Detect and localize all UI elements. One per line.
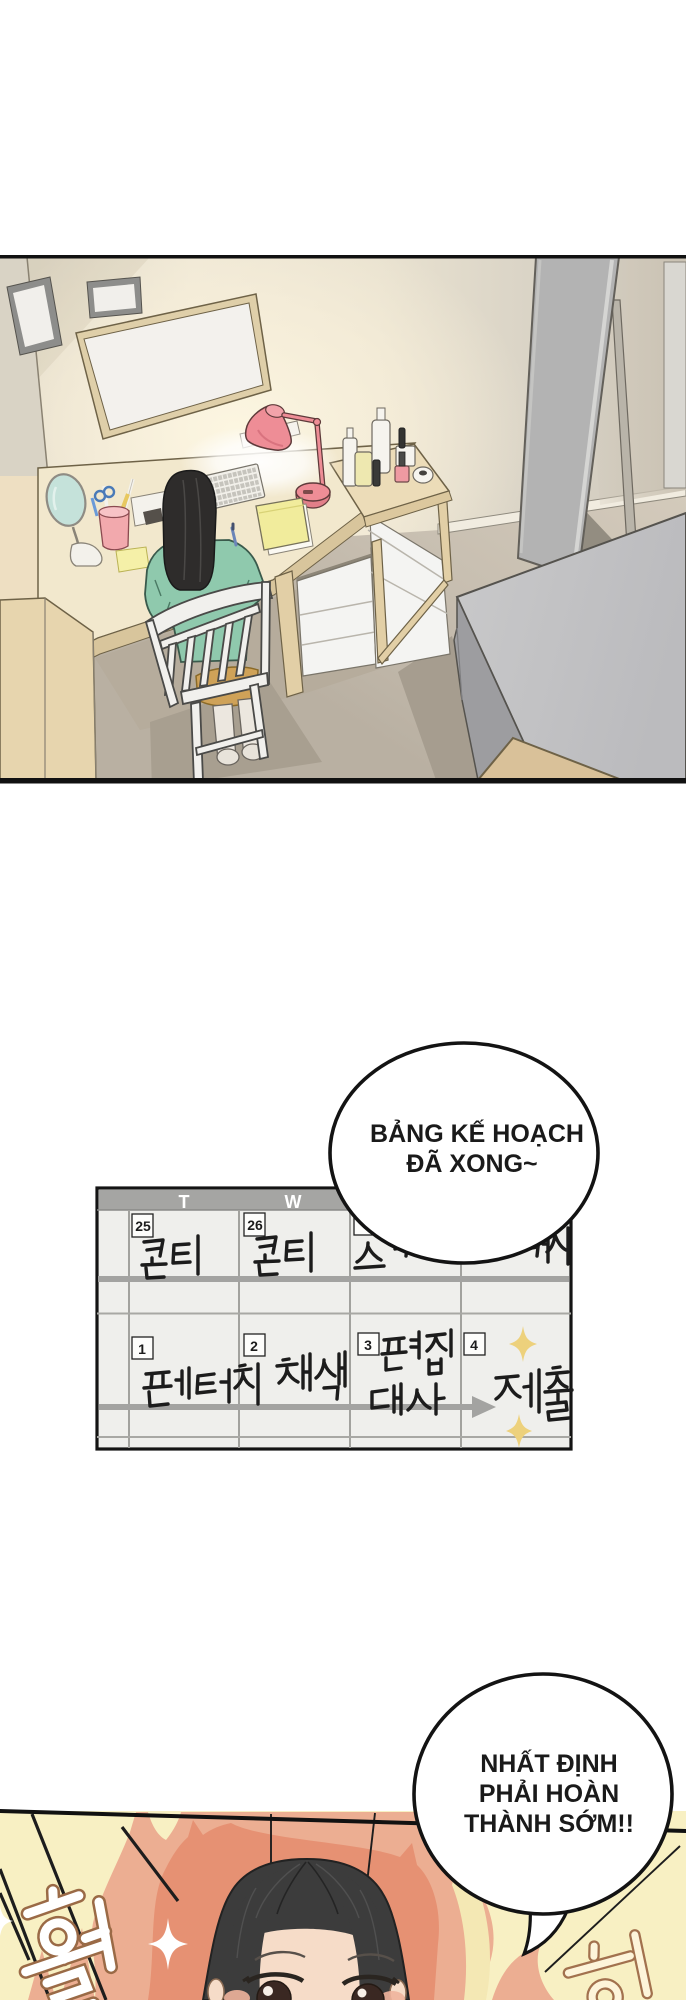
svg-text:W: W (285, 1192, 302, 1212)
svg-text:NHẤT ĐỊNH: NHẤT ĐỊNH (480, 1749, 618, 1778)
svg-text:1: 1 (138, 1341, 146, 1357)
svg-text:THÀNH SỚM!!: THÀNH SỚM!! (464, 1808, 634, 1838)
svg-text:ĐÃ XONG~: ĐÃ XONG~ (406, 1148, 537, 1178)
svg-text:BẢNG KẾ HOẠCH: BẢNG KẾ HOẠCH (370, 1118, 584, 1148)
svg-text:2: 2 (250, 1338, 258, 1354)
svg-text:4: 4 (470, 1337, 478, 1353)
svg-text:3: 3 (364, 1337, 372, 1353)
svg-text:T: T (179, 1192, 190, 1212)
svg-text:PHẢI HOÀN: PHẢI HOÀN (479, 1778, 619, 1808)
svg-text:26: 26 (247, 1217, 263, 1233)
svg-text:25: 25 (135, 1218, 151, 1234)
